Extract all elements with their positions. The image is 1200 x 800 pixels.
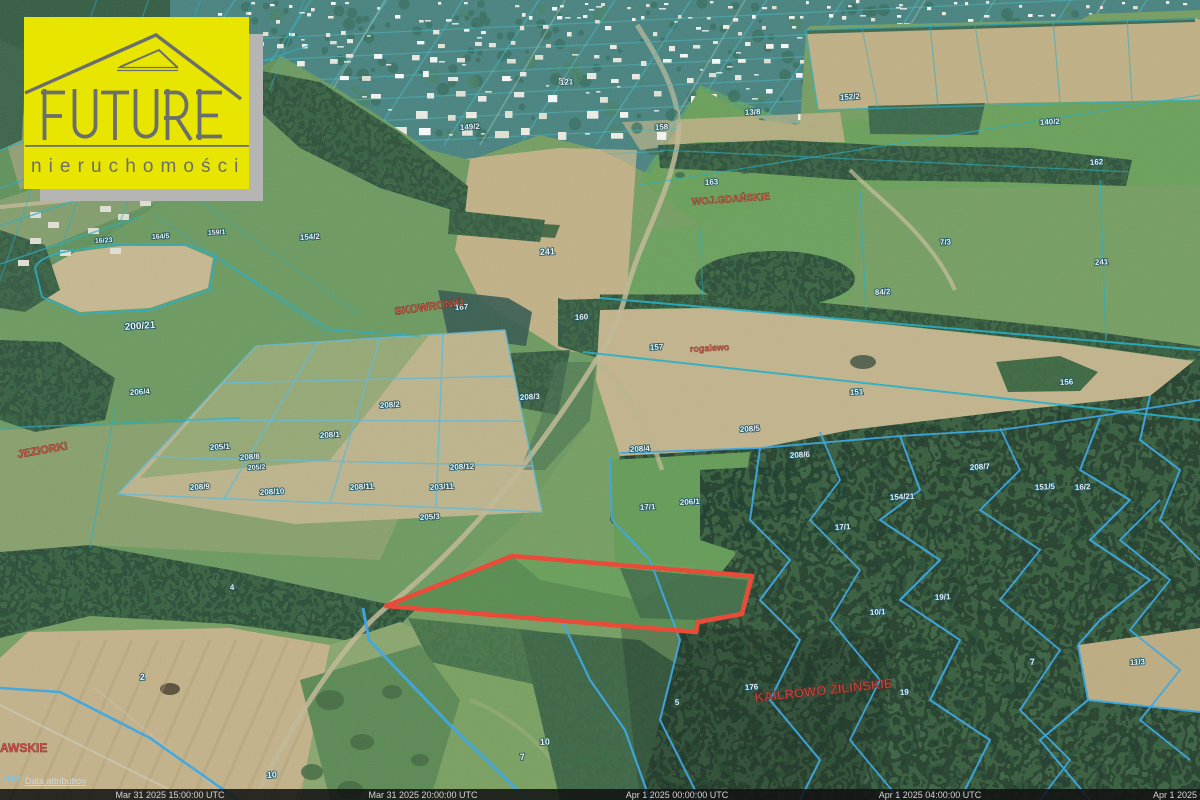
svg-text:Mar 31 2025 15:00:00 UTC: Mar 31 2025 15:00:00 UTC xyxy=(115,790,225,800)
svg-text:nieruchomości: nieruchomości xyxy=(31,156,243,177)
svg-text:Data attribution: Data attribution xyxy=(25,776,86,786)
svg-text:Apr 1 2025 00:00:00 UTC: Apr 1 2025 00:00:00 UTC xyxy=(626,790,729,800)
svg-text:ion: ion xyxy=(4,772,21,784)
svg-text:Apr 1 2025 08:0: Apr 1 2025 08:0 xyxy=(1153,790,1200,800)
svg-text:Apr 1 2025 04:00:00 UTC: Apr 1 2025 04:00:00 UTC xyxy=(879,790,982,800)
svg-text:Mar 31 2025 20:00:00 UTC: Mar 31 2025 20:00:00 UTC xyxy=(368,790,478,800)
